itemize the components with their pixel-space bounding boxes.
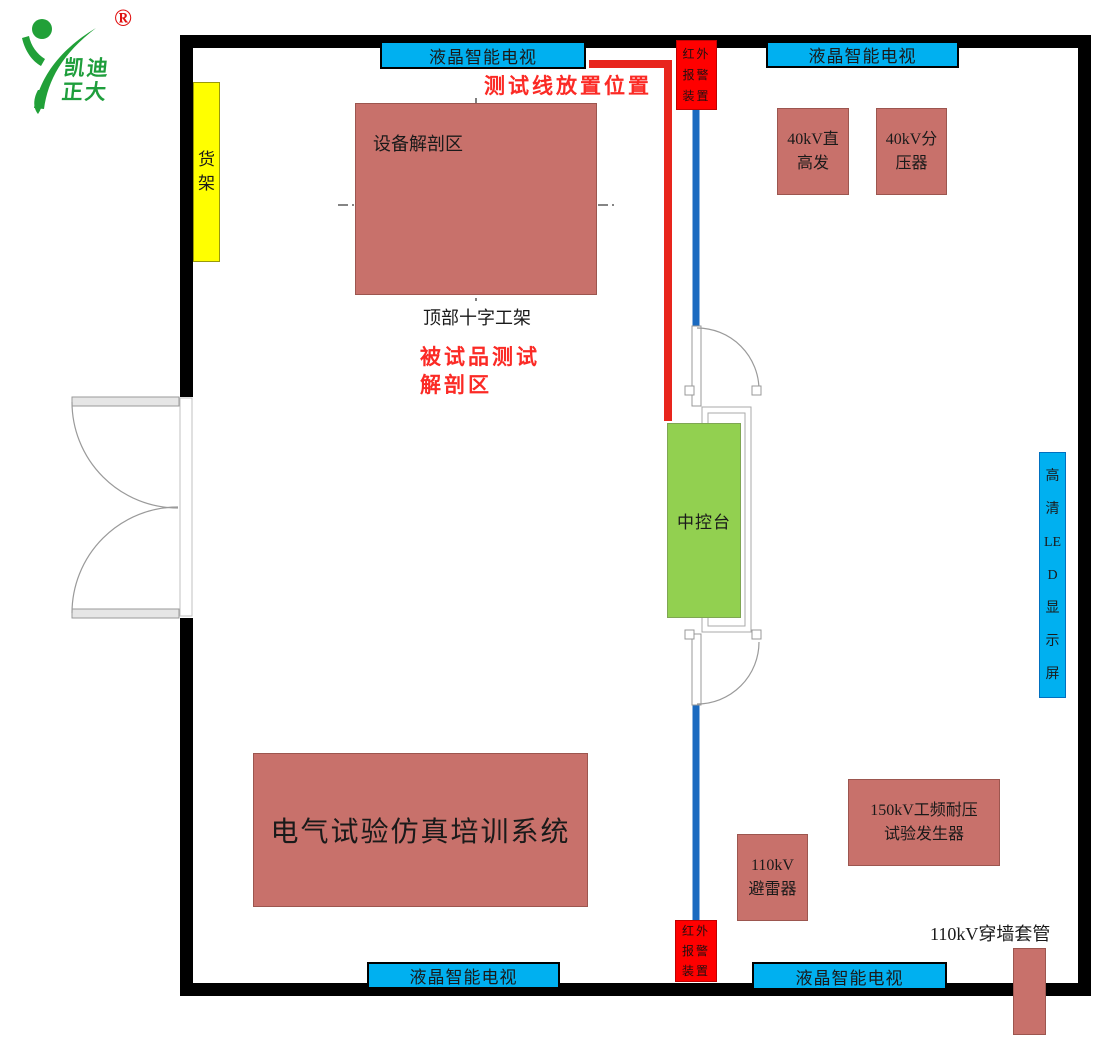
alarm-label-line: 红外 <box>682 44 710 65</box>
led-label-line: 清 <box>1046 493 1060 526</box>
shelf-rack: 货 架 <box>193 82 220 262</box>
tv-label: 液晶智能电视 <box>410 963 518 988</box>
training-system-area: 电气试验仿真培训系统 <box>253 753 588 907</box>
tv-screen-bottom-left: 液晶智能电视 <box>367 962 560 989</box>
note-dut-test-area: 被试品测试 解剖区 <box>420 344 540 400</box>
alarm-label-line: 报警 <box>682 941 710 961</box>
tv-label: 液晶智能电视 <box>809 42 917 67</box>
equip-label-line: 压器 <box>895 152 927 176</box>
tv-label: 液晶智能电视 <box>796 964 904 989</box>
equip-label-line: 避雷器 <box>748 878 796 902</box>
hd-led-display: 高 清 LE D 显 示 屏 <box>1039 452 1066 698</box>
arrester-110kv: 110kV 避雷器 <box>737 834 808 921</box>
equip-label-line: 40kV分 <box>886 128 938 152</box>
dissection-area-label: 设备解剖区 <box>373 130 463 156</box>
dc-generator-40kv: 40kV直 高发 <box>777 108 849 195</box>
tv-screen-top-left: 液晶智能电视 <box>380 41 586 69</box>
voltage-divider-40kv: 40kV分 压器 <box>876 108 947 195</box>
note-test-line-position: 测试线放置位置 <box>484 73 652 101</box>
note-dut-line1: 被试品测试 <box>420 344 540 372</box>
generator-150kv: 150kV工频耐压 试验发生器 <box>848 779 1000 866</box>
alarm-label-line: 装置 <box>682 86 710 107</box>
tv-screen-top-right: 液晶智能电视 <box>766 41 959 68</box>
tv-screen-bottom-right: 液晶智能电视 <box>752 962 947 990</box>
note-dut-line2: 解剖区 <box>420 372 540 400</box>
shelf-label-char: 架 <box>198 172 215 196</box>
test-cable-line <box>589 64 668 421</box>
console-door-top <box>685 326 761 406</box>
led-label-line: 显 <box>1046 592 1060 625</box>
led-label-line: D <box>1047 559 1057 592</box>
alarm-label-line: 装置 <box>682 961 710 981</box>
led-label-line: LE <box>1044 526 1061 559</box>
wall-bushing-110kv <box>1013 948 1046 1035</box>
shelf-label-char: 货 <box>198 148 215 172</box>
central-console: 中控台 <box>667 423 741 618</box>
floor-plan: ® 凯迪 正大 <box>0 0 1107 1044</box>
training-system-label: 电气试验仿真培训系统 <box>270 810 570 850</box>
equip-label-line: 150kV工频耐压 <box>870 799 978 823</box>
label-top-cross-frame: 顶部十字工架 <box>397 304 557 330</box>
led-label-line: 屏 <box>1046 658 1060 691</box>
equip-label-line: 高发 <box>797 152 829 176</box>
tv-label: 液晶智能电视 <box>429 43 537 68</box>
infrared-alarm-bottom: 红外 报警 装置 <box>675 920 717 982</box>
equip-label-line: 40kV直 <box>787 128 839 152</box>
alarm-label-line: 红外 <box>682 921 710 941</box>
equip-label-line: 试验发生器 <box>884 823 964 847</box>
equipment-dissection-area: 设备解剖区 <box>355 103 597 295</box>
led-label-line: 高 <box>1046 460 1060 493</box>
equip-label-line: 110kV <box>751 854 794 878</box>
console-door-bottom <box>685 630 761 705</box>
led-label-line: 示 <box>1046 625 1060 658</box>
alarm-label-line: 报警 <box>682 65 710 86</box>
infrared-alarm-top: 红外 报警 装置 <box>676 40 717 110</box>
console-label: 中控台 <box>677 508 731 533</box>
left-entry-door <box>72 397 194 618</box>
wall-bushing-label: 110kV穿墙套管 <box>930 920 1090 946</box>
